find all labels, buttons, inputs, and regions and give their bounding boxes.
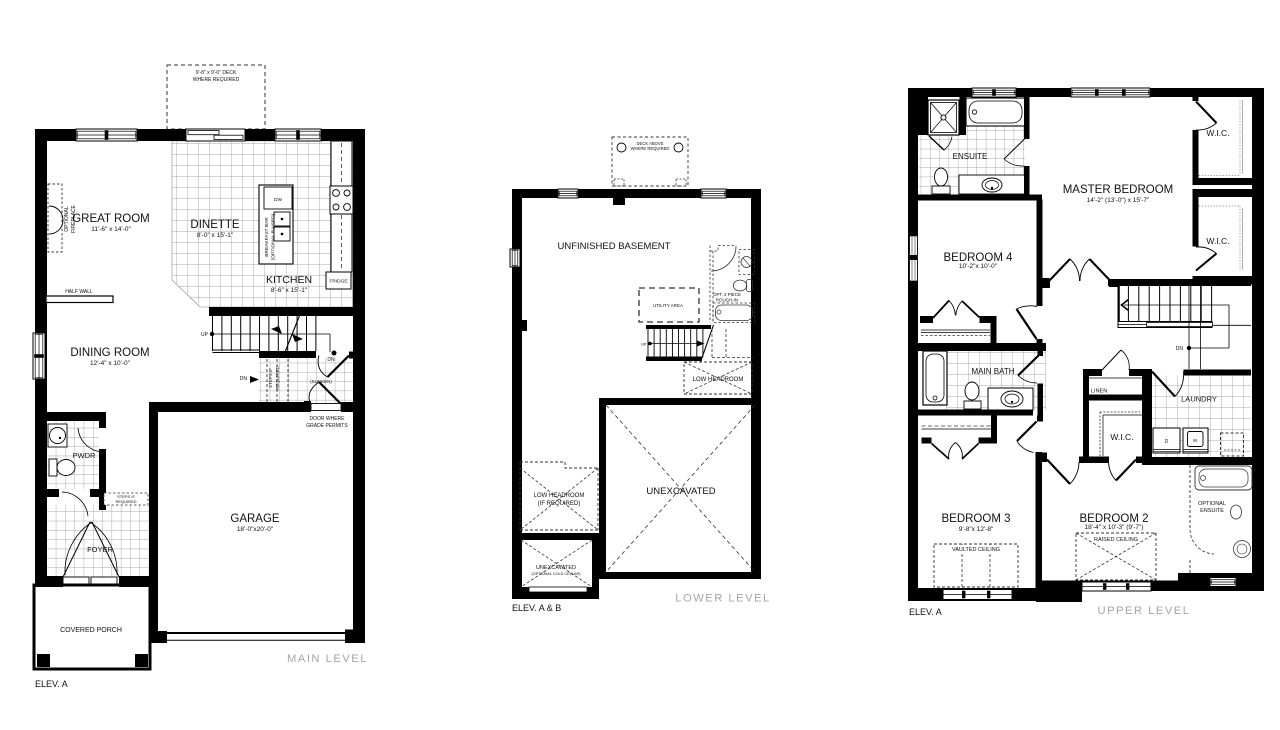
svg-text:LOW HEADROOM: LOW HEADROOM xyxy=(534,493,585,499)
svg-text:W.I.C.: W.I.C. xyxy=(1206,128,1229,138)
svg-text:UPPER LEVEL: UPPER LEVEL xyxy=(1098,605,1191,617)
svg-text:10'-2"x 10'-0": 10'-2"x 10'-0" xyxy=(959,263,998,270)
svg-text:UP: UP xyxy=(641,342,647,347)
svg-text:BREAKFAST BAR: BREAKFAST BAR xyxy=(264,217,270,257)
svg-text:9'-8"x 12'-8": 9'-8"x 12'-8" xyxy=(959,526,994,533)
svg-text:UTILITY AREA: UTILITY AREA xyxy=(653,303,683,308)
svg-text:REQUIRED: REQUIRED xyxy=(275,365,280,390)
svg-text:ENSUITE: ENSUITE xyxy=(953,152,988,161)
svg-text:DINETTE: DINETTE xyxy=(190,219,240,231)
svg-text:ROUGH-IN: ROUGH-IN xyxy=(716,298,738,303)
svg-text:DINING ROOM: DINING ROOM xyxy=(70,347,149,359)
svg-text:BEDROOM 3: BEDROOM 3 xyxy=(941,513,1010,525)
svg-text:W.I.C.: W.I.C. xyxy=(1206,236,1229,246)
svg-text:ELEV. A & B: ELEV. A & B xyxy=(512,603,561,613)
svg-text:DN: DN xyxy=(327,357,335,363)
svg-text:DN: DN xyxy=(1176,346,1184,352)
svg-text:12'-4" x 10'-0": 12'-4" x 10'-0" xyxy=(90,360,131,367)
svg-text:OPTIONAL: OPTIONAL xyxy=(1198,501,1226,507)
svg-text:PWDR: PWDR xyxy=(73,451,96,460)
svg-text:D: D xyxy=(1165,439,1169,445)
svg-text:UNEXCAVATED: UNEXCAVATED xyxy=(646,486,715,497)
svg-text:(OPTIONAL RAISED): (OPTIONAL RAISED) xyxy=(271,213,277,260)
svg-text:14'-2" (13'-0") x 15'-7": 14'-2" (13'-0") x 15'-7" xyxy=(1087,197,1150,204)
svg-text:UNFINISHED BASEMENT: UNFINISHED BASEMENT xyxy=(558,241,671,252)
svg-text:(SUNKEN): (SUNKEN) xyxy=(310,379,332,384)
svg-text:8'-6" x 15'-1": 8'-6" x 15'-1" xyxy=(271,287,308,294)
svg-text:MASTER BEDROOM: MASTER BEDROOM xyxy=(1063,184,1174,196)
svg-text:FOYER: FOYER xyxy=(87,545,113,554)
svg-text:ELEV. A: ELEV. A xyxy=(909,607,942,617)
svg-text:RAISED CEILING: RAISED CEILING xyxy=(1094,537,1138,543)
svg-text:WHERE REQUIRED: WHERE REQUIRED xyxy=(193,77,240,83)
svg-text:MAIN LEVEL: MAIN LEVEL xyxy=(287,653,368,665)
svg-text:8'-0" x 15'-1": 8'-0" x 15'-1" xyxy=(197,232,234,239)
svg-text:GREAT ROOM: GREAT ROOM xyxy=(72,213,150,225)
svg-text:COVERED PORCH: COVERED PORCH xyxy=(60,627,122,634)
svg-text:DOOR WHERE: DOOR WHERE xyxy=(310,416,346,422)
svg-text:18'-0"x20'-0": 18'-0"x20'-0" xyxy=(237,526,274,533)
svg-text:LOW HEADROOM: LOW HEADROOM xyxy=(693,377,744,383)
svg-text:GRADE PERMITS: GRADE PERMITS xyxy=(306,423,348,429)
svg-text:DW: DW xyxy=(274,197,282,203)
svg-text:(IF REQUIRED): (IF REQUIRED) xyxy=(538,501,581,507)
svg-text:VAULTED CEILING: VAULTED CEILING xyxy=(952,547,1000,553)
svg-text:LINEN: LINEN xyxy=(1091,389,1107,395)
svg-text:MAIN BATH: MAIN BATH xyxy=(972,367,1015,376)
svg-text:9'-8" x 9'-0" DECK: 9'-8" x 9'-0" DECK xyxy=(196,70,237,76)
svg-text:HALF WALL: HALF WALL xyxy=(65,289,93,295)
svg-text:FRIDGE: FRIDGE xyxy=(329,279,347,285)
svg-text:DN: DN xyxy=(240,376,248,382)
svg-text:UP: UP xyxy=(201,332,209,338)
svg-text:11'-6" x 14'-0": 11'-6" x 14'-0" xyxy=(91,226,131,233)
svg-text:18'-4" x 10'-3" (9'-7"): 18'-4" x 10'-3" (9'-7") xyxy=(1084,524,1143,531)
svg-text:KITCHEN: KITCHEN xyxy=(266,274,312,286)
svg-text:(OPTIONAL COLD CELLAR): (OPTIONAL COLD CELLAR) xyxy=(531,572,581,576)
svg-text:UNEXCAVATED: UNEXCAVATED xyxy=(536,565,576,571)
svg-text:LOWER LEVEL: LOWER LEVEL xyxy=(675,593,770,605)
svg-text:ENSUITE: ENSUITE xyxy=(1200,508,1224,514)
svg-text:OPTIONAL: OPTIONAL xyxy=(64,206,70,232)
svg-text:GARAGE: GARAGE xyxy=(230,513,280,525)
svg-text:W.I.C.: W.I.C. xyxy=(1110,432,1133,442)
svg-text:ELEV. A: ELEV. A xyxy=(35,679,68,689)
svg-text:WHERE REQUIRED: WHERE REQUIRED xyxy=(631,146,670,151)
svg-text:OPT. 3 PIECE: OPT. 3 PIECE xyxy=(713,292,741,297)
svg-text:LAUNDRY: LAUNDRY xyxy=(1181,395,1217,404)
svg-text:STEPS IF: STEPS IF xyxy=(268,368,273,388)
svg-text:REQUIRED: REQUIRED xyxy=(115,499,136,504)
